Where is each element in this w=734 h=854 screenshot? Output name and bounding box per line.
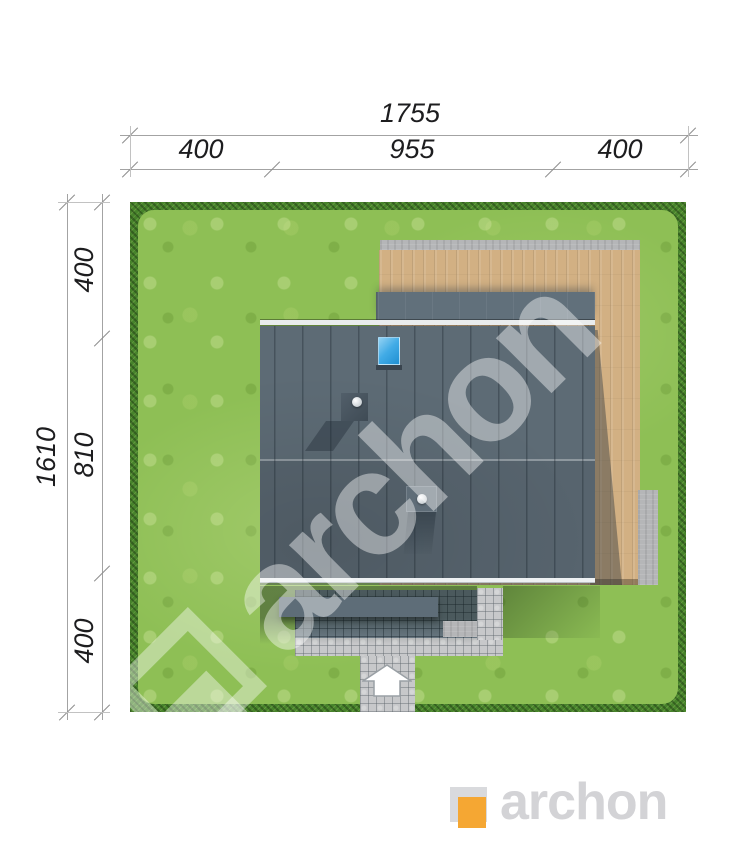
extension-line	[58, 712, 110, 713]
site-plan-page: 1755 400 955 400 1610 400 810 400	[0, 0, 734, 854]
extension-line	[58, 202, 110, 203]
dim-top-total-label: 1755	[310, 98, 510, 128]
roof-vent-shadow	[404, 512, 436, 554]
roof-vent-cap	[417, 494, 427, 504]
dim-left-seg1-label: 400	[69, 210, 99, 330]
chimney-vent-cap	[352, 397, 362, 407]
dim-top-seg2-label: 955	[352, 134, 472, 164]
chimney	[341, 393, 368, 421]
extension-line	[130, 126, 131, 177]
dim-left-seg3-label: 400	[69, 581, 99, 701]
dim-left-total-label: 1610	[31, 397, 61, 517]
dim-top-seg1-label: 400	[141, 134, 261, 164]
dim-left-segments-line	[102, 194, 103, 720]
roof-eave	[260, 578, 595, 585]
plot-hedge-border: archon	[130, 202, 686, 712]
dim-top-segments-line	[120, 169, 698, 170]
entrance-arrow-icon	[362, 664, 412, 697]
entrance-arrow	[362, 664, 412, 697]
roof-ridge	[260, 319, 595, 326]
paving-light-strip	[477, 588, 503, 640]
side-concrete-pad	[638, 490, 658, 585]
dim-top-seg3-label: 400	[560, 134, 680, 164]
secondary-roof-slope	[376, 292, 595, 321]
dim-left-total-line	[67, 194, 68, 720]
skylight-frame	[376, 365, 402, 370]
skylight-window	[378, 337, 400, 365]
concrete-strip	[380, 240, 640, 250]
footer-brand-text: archon	[500, 776, 667, 828]
footer-logo-orange-square	[458, 797, 486, 828]
dim-left-seg2-label: 810	[69, 395, 99, 515]
entrance-concrete-pad	[443, 621, 477, 637]
roof-vent	[406, 486, 437, 512]
extension-line	[688, 126, 689, 177]
porch-canopy	[279, 597, 438, 617]
house-shadow-on-grass	[503, 586, 600, 638]
